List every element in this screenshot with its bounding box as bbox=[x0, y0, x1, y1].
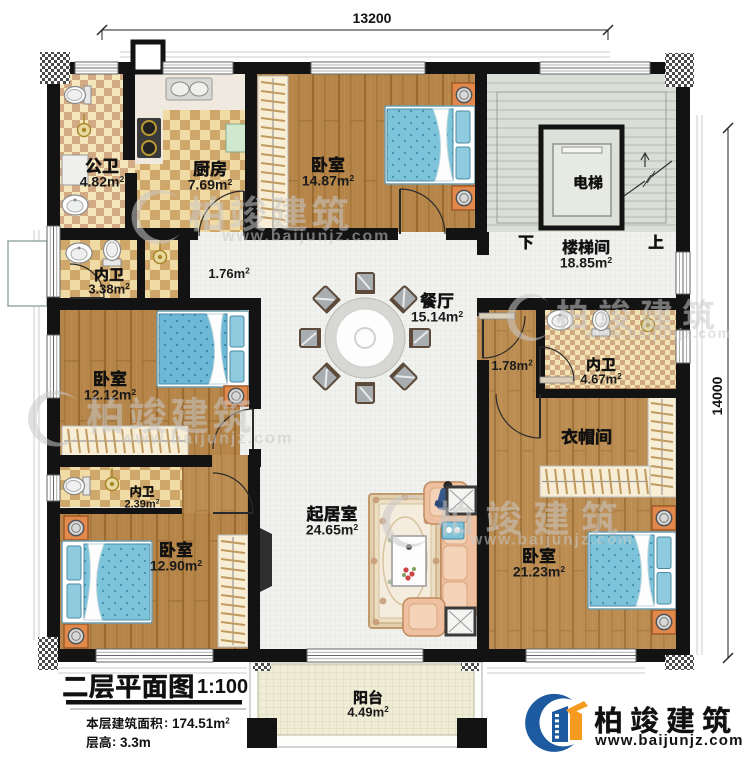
svg-text::: : bbox=[164, 715, 168, 730]
svg-text:15.14m2: 15.14m2 bbox=[411, 309, 463, 325]
svg-text:14.87m2: 14.87m2 bbox=[302, 173, 354, 189]
svg-text:4.67m2: 4.67m2 bbox=[580, 372, 622, 387]
svg-text:3.3m: 3.3m bbox=[120, 735, 151, 750]
svg-text:18.85m2: 18.85m2 bbox=[560, 255, 612, 271]
svg-text:13200: 13200 bbox=[353, 10, 392, 26]
svg-text:www.baijunjz.com: www.baijunjz.com bbox=[594, 732, 744, 749]
svg-text:3.38m2: 3.38m2 bbox=[88, 282, 130, 297]
svg-text::: : bbox=[112, 734, 116, 749]
svg-text:www.baijunjz.com: www.baijunjz.com bbox=[221, 228, 390, 245]
svg-text:www.baijunjz.com: www.baijunjz.com bbox=[120, 429, 293, 447]
svg-text:7.69m2: 7.69m2 bbox=[188, 177, 233, 193]
svg-text:1.78m2: 1.78m2 bbox=[491, 358, 533, 373]
svg-text:24.65m2: 24.65m2 bbox=[306, 522, 358, 538]
svg-text:4.82m2: 4.82m2 bbox=[80, 174, 125, 190]
svg-text:1.76m2: 1.76m2 bbox=[208, 266, 250, 281]
svg-text:14000: 14000 bbox=[709, 376, 725, 415]
svg-text:www.baijunjz.com: www.baijunjz.com bbox=[469, 532, 634, 549]
svg-text:174.51m2: 174.51m2 bbox=[172, 716, 230, 731]
svg-text:www.baijunjz.com: www.baijunjz.com bbox=[585, 325, 732, 341]
svg-text:21.23m2: 21.23m2 bbox=[513, 564, 565, 580]
svg-text:1:100: 1:100 bbox=[197, 676, 248, 698]
svg-text:2.39m2: 2.39m2 bbox=[125, 499, 160, 511]
svg-text:4.49m2: 4.49m2 bbox=[347, 705, 389, 720]
svg-text:12.90m2: 12.90m2 bbox=[150, 558, 202, 574]
